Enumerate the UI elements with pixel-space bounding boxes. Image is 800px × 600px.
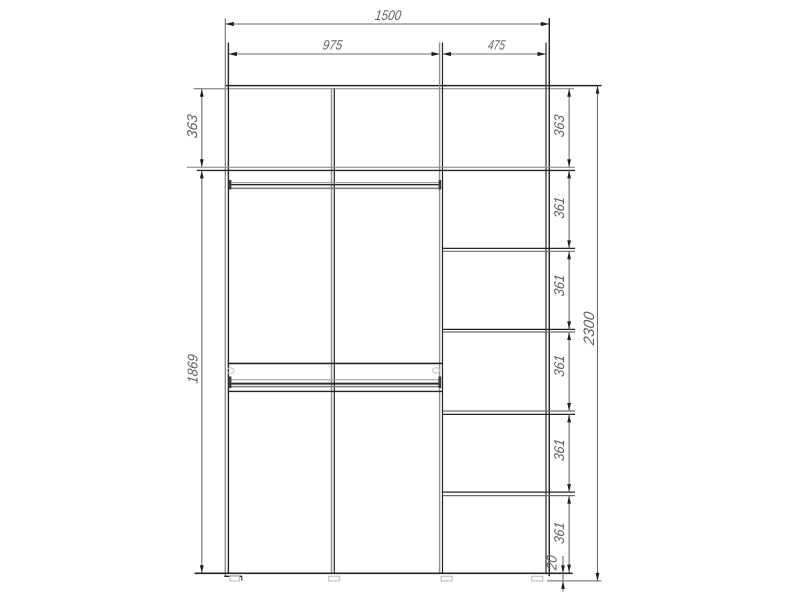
svg-text:1869: 1869 — [186, 353, 202, 384]
svg-text:363: 363 — [185, 114, 201, 140]
svg-text:20: 20 — [545, 554, 561, 572]
svg-text:475: 475 — [487, 38, 506, 53]
svg-text:361: 361 — [552, 274, 568, 298]
svg-text:361: 361 — [552, 354, 568, 378]
svg-text:361: 361 — [552, 521, 568, 545]
svg-text:361: 361 — [552, 438, 568, 462]
svg-text:361: 361 — [552, 196, 568, 220]
svg-text:1500: 1500 — [374, 7, 402, 23]
svg-text:363: 363 — [552, 114, 568, 138]
svg-text:975: 975 — [322, 38, 344, 53]
svg-text:2300: 2300 — [581, 310, 598, 347]
